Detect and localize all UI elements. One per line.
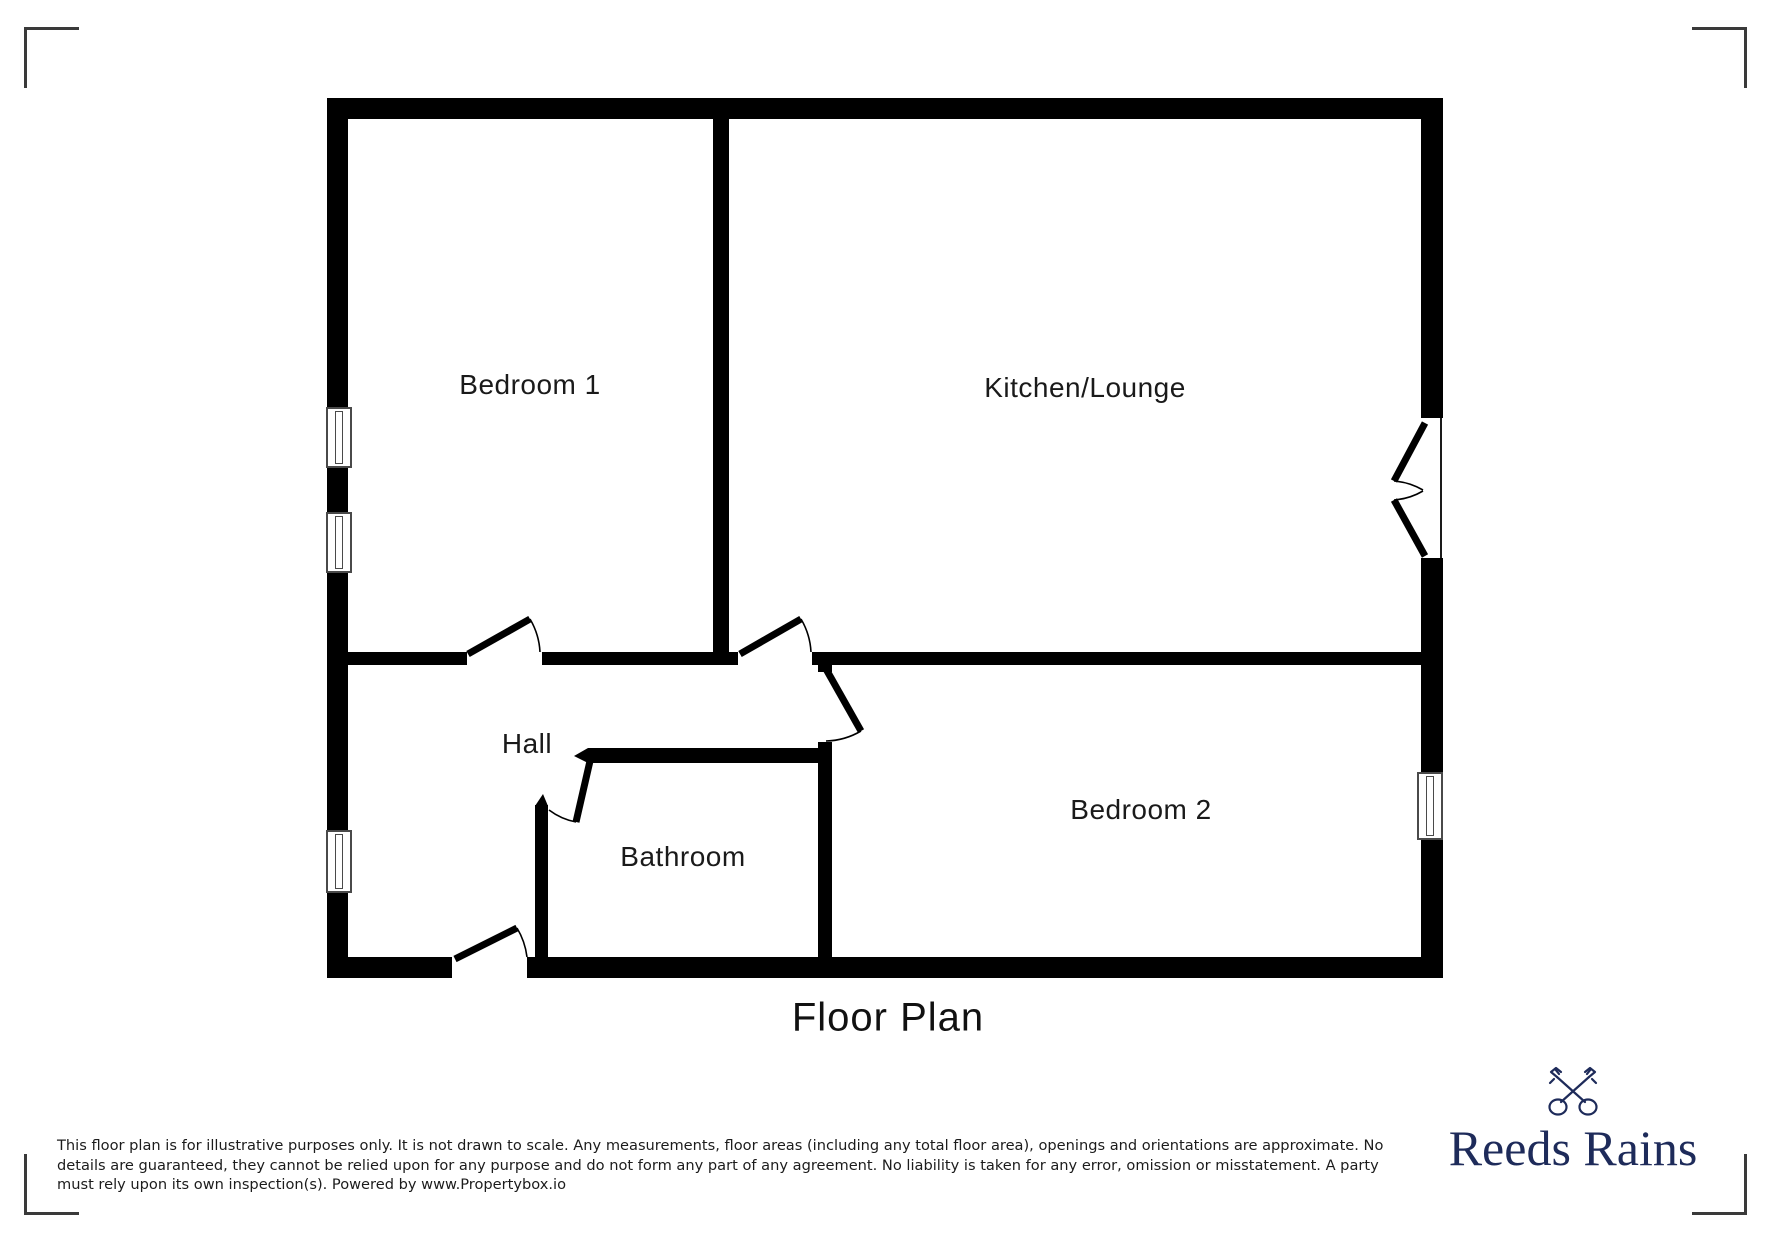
bathroom-door-leaf [576, 761, 590, 822]
corner-mark-top-left [24, 27, 79, 88]
wall-left-between-windows [327, 468, 348, 512]
door-symbols-layer [0, 0, 1771, 1239]
window-pane [335, 834, 343, 889]
kitchen-door-leaf [740, 619, 801, 654]
bedroom2-door-leaf [826, 669, 861, 731]
room-label-hall: Hall [502, 728, 552, 760]
disclaimer-text: This floor plan is for illustrative purp… [57, 1136, 1387, 1195]
bathroom-wall-end-cap [574, 748, 588, 763]
entrance-door-arc [517, 928, 527, 957]
corner-mark-top-right [1692, 27, 1747, 88]
wall-bathroom-left [535, 805, 548, 957]
window-pane [335, 516, 343, 569]
plan-title: Floor Plan [792, 996, 984, 1041]
wall-bedroom2-door-stub [818, 665, 832, 672]
kitchen-door-arc [801, 619, 811, 652]
wall-hall-top [348, 652, 467, 665]
window-pane [335, 411, 343, 464]
window-bedroom1-lower [326, 512, 352, 573]
wall-bathroom-top [588, 748, 832, 763]
window-hall [326, 830, 352, 893]
crossed-keys-icon [1541, 1066, 1605, 1118]
disclaimer-line: details are guaranteed, they cannot be r… [57, 1156, 1387, 1176]
window-pane [1426, 776, 1434, 836]
wall-left-lower [327, 893, 348, 978]
wall-right-lower [1421, 840, 1443, 978]
french-door-bottom-leaf [1394, 500, 1425, 556]
wall-left-middle [327, 573, 348, 830]
wall-bottom-right-of-entrance [527, 957, 1443, 978]
window-bedroom1-upper [326, 407, 352, 468]
disclaimer-line: This floor plan is for illustrative purp… [57, 1136, 1387, 1156]
bathroom-door-arc [549, 810, 576, 822]
wall-right-middle [1421, 558, 1443, 772]
room-label-bedroom2: Bedroom 2 [1070, 794, 1211, 826]
agency-logo: Reeds Rains [1443, 1066, 1703, 1174]
french-door-top-arc [1394, 481, 1423, 490]
wall-bedroom2-left [818, 742, 832, 957]
bedroom2-door-arc [826, 731, 861, 741]
window-bedroom2 [1417, 772, 1443, 840]
room-label-bedroom1: Bedroom 1 [459, 369, 600, 401]
wall-right-upper [1421, 98, 1443, 418]
agency-logo-text: Reeds Rains [1443, 1122, 1703, 1174]
french-door-bottom-arc [1394, 491, 1423, 500]
room-label-bathroom: Bathroom [620, 841, 745, 873]
wall-divider-middle [542, 652, 738, 665]
hall-door-leaf [468, 619, 530, 654]
wall-left-upper [327, 98, 348, 407]
wall-bedroom2-top [812, 652, 1421, 665]
hall-door-arc [530, 619, 540, 652]
room-label-kitchen-lounge: Kitchen/Lounge [984, 372, 1186, 404]
entrance-door-leaf [455, 928, 517, 959]
disclaimer-line: must rely upon its own inspection(s). Po… [57, 1175, 1387, 1195]
wall-top [327, 98, 1443, 119]
french-door-top-leaf [1394, 423, 1425, 481]
floor-plan-page: Bedroom 1 Kitchen/Lounge Hall Bathroom B… [0, 0, 1771, 1239]
wall-bedroom1-kitchen-divider [713, 119, 729, 652]
